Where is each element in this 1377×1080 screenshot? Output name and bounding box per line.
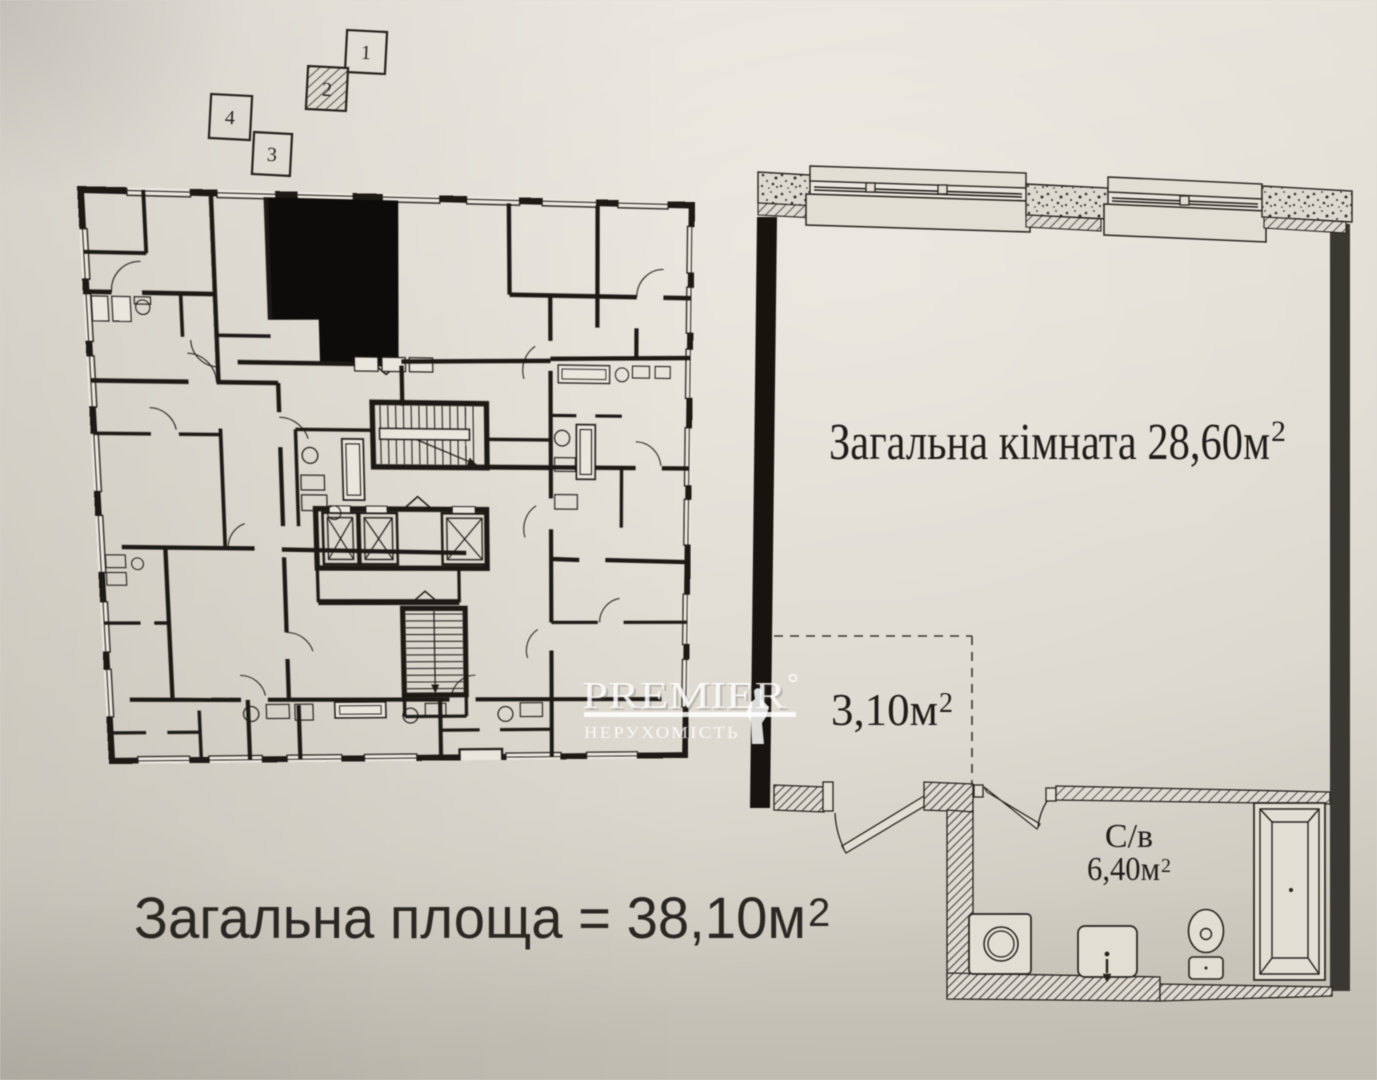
svg-text:НЕРУХОМІСТЬ: НЕРУХОМІСТЬ <box>584 723 740 742</box>
